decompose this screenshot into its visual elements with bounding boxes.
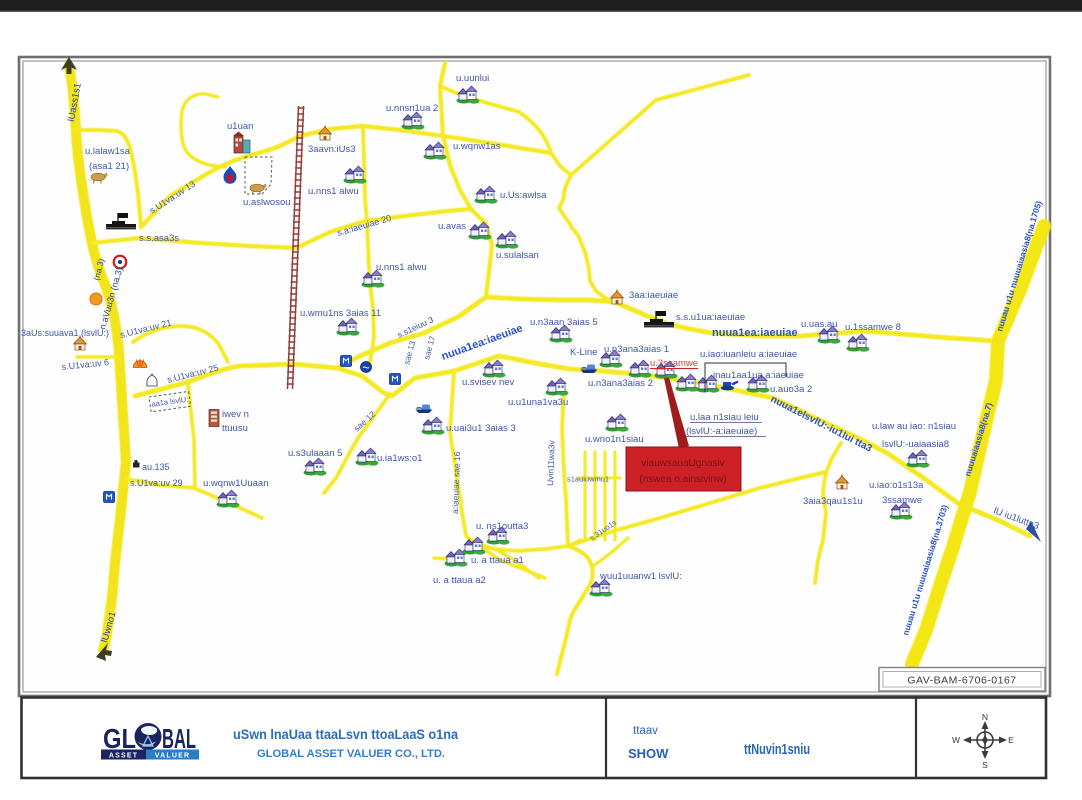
svg-text:3aia3qau1s1u: 3aia3qau1s1u bbox=[803, 496, 863, 507]
svg-text:GLOBAL ASSET VALUER CO., LTD.: GLOBAL ASSET VALUER CO., LTD. bbox=[257, 748, 445, 760]
svg-text:s.s.asa3s: s.s.asa3s bbox=[139, 233, 179, 244]
svg-text:s.s.u1ua:iaeuiae: s.s.u1ua:iaeuiae bbox=[676, 312, 745, 323]
svg-text:u.law au iao: n1siau: u.law au iao: n1siau bbox=[872, 421, 956, 432]
svg-text:nuua1ea:iaeuiae: nuua1ea:iaeuiae bbox=[712, 327, 798, 339]
svg-text:ttNuvin1sniu: ttNuvin1sniu bbox=[744, 741, 810, 758]
svg-text:S: S bbox=[982, 760, 988, 770]
svg-text:3aUs:suuava1 (lsvlU:): 3aUs:suuava1 (lsvlU:) bbox=[21, 328, 109, 338]
svg-text:u.3ssamwe: u.3ssamwe bbox=[650, 358, 698, 369]
svg-text:BAL: BAL bbox=[162, 723, 196, 754]
svg-text:u.lalaw1sa: u.lalaw1sa bbox=[85, 146, 131, 157]
svg-text:ttuusu: ttuusu bbox=[222, 423, 248, 434]
svg-text:(lsvlU:-a:iaeuiae): (lsvlU:-a:iaeuiae) bbox=[686, 426, 757, 437]
svg-text:u.uas.au: u.uas.au bbox=[801, 319, 837, 330]
svg-text:GL: GL bbox=[103, 723, 136, 754]
svg-text:ttaav: ttaav bbox=[633, 725, 658, 737]
svg-text:VALUER: VALUER bbox=[155, 753, 190, 760]
svg-text:u.laa n1siau leiu: u.laa n1siau leiu bbox=[690, 412, 759, 423]
svg-text:u.n3ana3aias 2: u.n3ana3aias 2 bbox=[588, 378, 653, 389]
svg-text:u.sulalsan: u.sulalsan bbox=[496, 250, 539, 261]
svg-text:u.svisev nev: u.svisev nev bbox=[462, 377, 515, 388]
svg-text:3aavn:iUs3: 3aavn:iUs3 bbox=[308, 144, 356, 155]
svg-text:E: E bbox=[1008, 735, 1014, 745]
svg-text:u1uan: u1uan bbox=[227, 121, 253, 132]
svg-text:u.n3ana3aias 1: u.n3ana3aias 1 bbox=[604, 344, 669, 355]
svg-text:u.avas: u.avas bbox=[438, 221, 466, 232]
svg-text:u.1ssamwe 8: u.1ssamwe 8 bbox=[845, 322, 901, 333]
svg-text:viauwsauaUgnasiv: viauwsauaUgnasiv bbox=[641, 458, 724, 469]
svg-text:u.iao:o1s13a: u.iao:o1s13a bbox=[869, 480, 924, 491]
svg-text:N: N bbox=[982, 712, 988, 722]
svg-text:uSwn lnaUaa ttaaLsvn ttoaLaaS: uSwn lnaUaa ttaaLsvn ttoaLaaS o1na bbox=[233, 726, 458, 742]
svg-text:u. a ttaua a1: u. a ttaua a1 bbox=[471, 555, 524, 566]
svg-text:u.nns1 alwu: u.nns1 alwu bbox=[376, 262, 427, 273]
svg-text:W: W bbox=[952, 735, 960, 745]
svg-text:u.s3ulaaan 5: u.s3ulaaan 5 bbox=[288, 448, 342, 459]
svg-text:u.u1una1va3u: u.u1una1va3u bbox=[508, 397, 568, 408]
svg-text:inau1aa1ua a:iaeuiae: inau1aa1ua a:iaeuiae bbox=[713, 370, 804, 381]
svg-text:wuu1uuanw1 lsvlU:: wuu1uuanw1 lsvlU: bbox=[599, 571, 682, 582]
svg-text:u.uunlui: u.uunlui bbox=[456, 73, 489, 84]
svg-text:u.nns1 alwu: u.nns1 alwu bbox=[308, 186, 359, 197]
svg-text:iwev n: iwev n bbox=[222, 409, 249, 420]
svg-text:Uvin11wa3v: Uvin11wa3v bbox=[545, 439, 557, 486]
svg-text:u.wno1n1siau: u.wno1n1siau bbox=[585, 434, 644, 445]
svg-text:ASSET: ASSET bbox=[109, 753, 138, 760]
svg-text:u.wqnw1Uuaan: u.wqnw1Uuaan bbox=[203, 478, 269, 489]
svg-text:SHOW: SHOW bbox=[628, 746, 669, 761]
svg-text:u.wmu1ns 3aias 11: u.wmu1ns 3aias 11 bbox=[300, 308, 381, 319]
svg-text:u.uai3u1 3aias 3: u.uai3u1 3aias 3 bbox=[446, 423, 516, 434]
svg-text:3ssamwe: 3ssamwe bbox=[882, 495, 922, 506]
svg-text:u.aslwosou: u.aslwosou bbox=[243, 197, 291, 208]
svg-text:u.wqnw1as: u.wqnw1as bbox=[453, 141, 501, 152]
svg-text:u.ia1ws:o1: u.ia1ws:o1 bbox=[377, 453, 422, 464]
svg-text:(nswea o.ainsivinw): (nswea o.ainsivinw) bbox=[639, 474, 726, 485]
svg-text:u. a ttaua a2: u. a ttaua a2 bbox=[433, 575, 486, 586]
svg-text:u.n3aan 3aias 5: u.n3aan 3aias 5 bbox=[530, 317, 598, 328]
svg-text:u.auo3a 2: u.auo3a 2 bbox=[770, 384, 812, 395]
svg-text:u.iao:iuanleiu a:iaeuiae: u.iao:iuanleiu a:iaeuiae bbox=[700, 349, 797, 360]
svg-text:K-Line: K-Line bbox=[570, 347, 597, 358]
svg-text:3aa:iaeuiae: 3aa:iaeuiae bbox=[629, 290, 678, 301]
svg-text:u.nnsn1ua 2: u.nnsn1ua 2 bbox=[386, 103, 438, 114]
svg-text:au.135: au.135 bbox=[142, 462, 170, 472]
svg-text:u. ns1outta3: u. ns1outta3 bbox=[476, 521, 528, 532]
svg-text:GAV-BAM-6706-0167: GAV-BAM-6706-0167 bbox=[907, 675, 1016, 687]
svg-text:(asa1 21): (asa1 21) bbox=[89, 161, 129, 172]
svg-text:s.U1va:uv 29: s.U1va:uv 29 bbox=[130, 478, 183, 488]
svg-text:lsvlU:-uaiaasia8: lsvlU:-uaiaasia8 bbox=[882, 439, 949, 450]
svg-text:u.Us:awlsa: u.Us:awlsa bbox=[500, 190, 547, 201]
svg-text:s1auiuwmu1: s1auiuwmu1 bbox=[567, 475, 609, 484]
